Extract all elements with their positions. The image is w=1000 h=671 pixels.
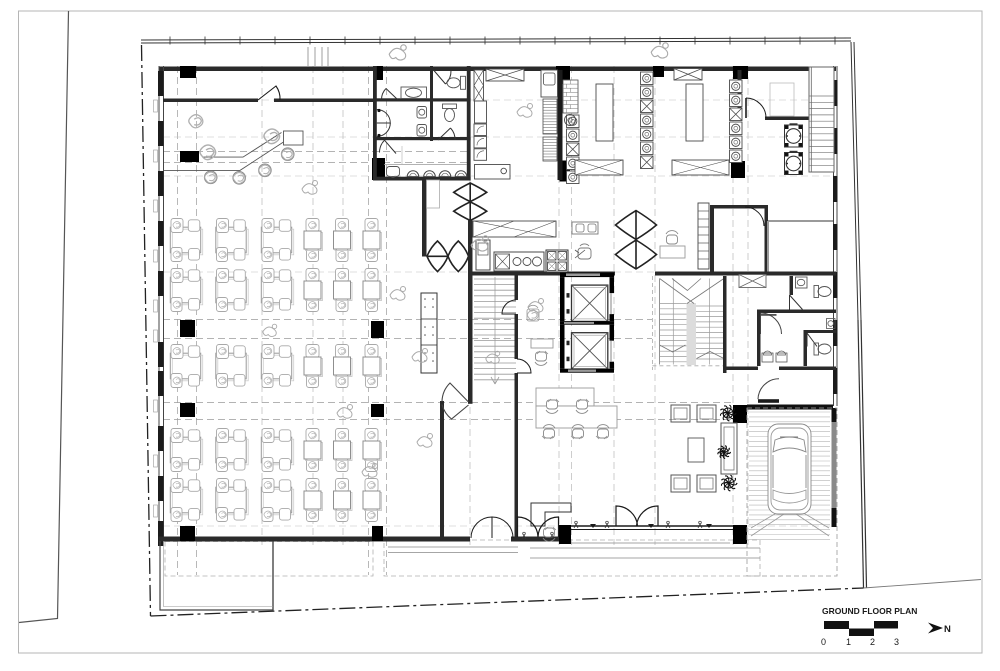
svg-text:2: 2	[870, 637, 875, 647]
svg-text:3: 3	[894, 637, 899, 647]
svg-text:GROUND FLOOR PLAN: GROUND FLOOR PLAN	[822, 606, 917, 616]
svg-text:N: N	[944, 624, 951, 635]
svg-text:0: 0	[821, 637, 826, 647]
svg-text:1: 1	[846, 637, 851, 647]
